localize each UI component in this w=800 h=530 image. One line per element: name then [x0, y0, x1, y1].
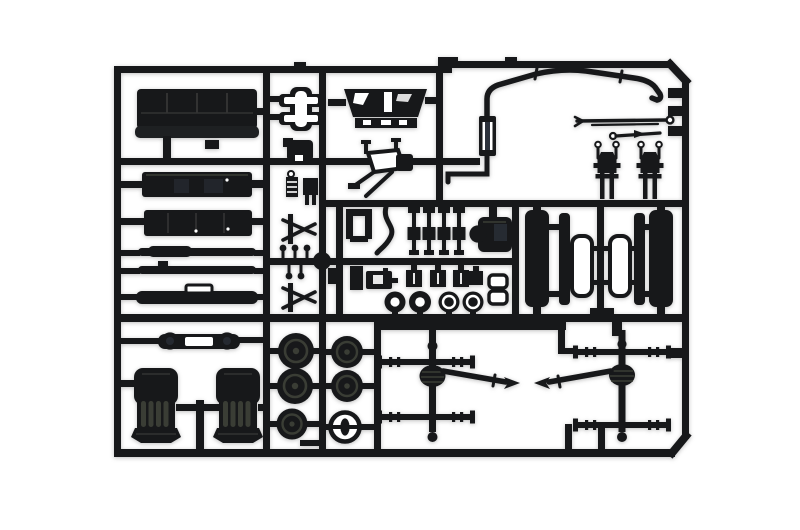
spring-shackle-blocks — [406, 264, 483, 287]
spring-hanger-right — [637, 142, 664, 199]
front-axle-assembly-part — [374, 330, 520, 442]
road-wheel-4 — [331, 336, 363, 368]
mount-block-part — [283, 138, 313, 161]
pronged-bracket-part — [303, 178, 318, 205]
runner-junction-knob — [313, 252, 331, 270]
control-rods-part — [575, 117, 673, 139]
tie-rod-part — [119, 246, 265, 257]
bench-seat-part — [135, 89, 267, 160]
cross-brace-part — [267, 87, 323, 131]
runner-vertical-3 — [436, 66, 443, 207]
frame-top-edge-left — [114, 66, 452, 73]
fuel-tank-part — [119, 172, 265, 197]
runner-horizontal-mid — [319, 200, 685, 207]
spring-hanger-left — [594, 142, 621, 199]
drive-rod-part — [119, 261, 265, 274]
side-muffler-part — [119, 285, 265, 304]
road-wheel-1 — [278, 333, 314, 369]
frame-left-edge — [114, 66, 121, 457]
frame-top-edge-right — [449, 61, 673, 68]
lever-v-lower-part — [283, 283, 315, 312]
road-wheel-3 — [277, 409, 308, 440]
leaf-spring-panels-left — [525, 203, 599, 320]
sprue-photo — [0, 0, 800, 530]
gearbox-block-part — [469, 203, 517, 252]
road-wheel-5 — [331, 370, 363, 402]
drive-shaft-left — [443, 371, 506, 382]
frame-right-edge — [682, 78, 689, 439]
steering-wheel-part — [322, 413, 376, 442]
rear-axle-assembly-part — [534, 330, 671, 442]
runner-vertical-6 — [597, 200, 604, 322]
square-rings-part — [489, 275, 507, 304]
runner-horizontal-parts — [270, 258, 515, 265]
sprue-image — [0, 0, 800, 530]
s-lever-part — [377, 207, 392, 253]
driver-seat-part — [131, 368, 181, 443]
u-channel-bracket-part — [346, 209, 372, 242]
dashboard-panel-part — [328, 89, 439, 128]
front-bumper-panel-part — [121, 332, 265, 349]
road-wheel-2 — [277, 368, 313, 404]
shock-absorbers-part — [408, 207, 466, 255]
lever-v-upper-part — [283, 214, 315, 244]
runner-vertical-1 — [263, 70, 270, 452]
storage-box-part — [119, 210, 265, 236]
mini-spring-part — [286, 171, 298, 197]
pedal-linkage-part — [348, 138, 413, 196]
